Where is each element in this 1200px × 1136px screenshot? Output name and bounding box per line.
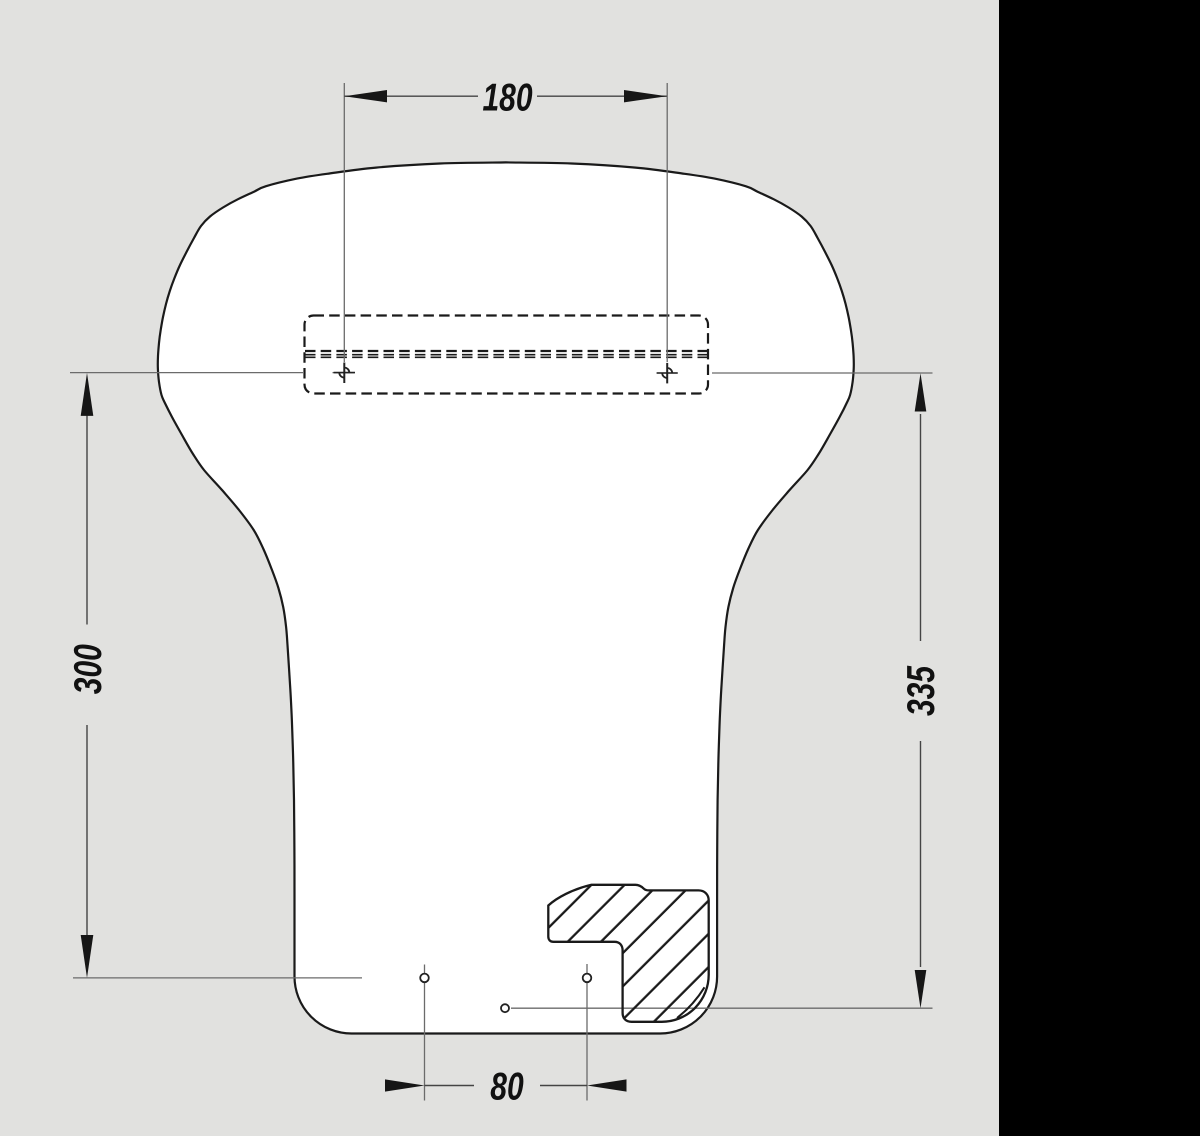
svg-text:335: 335 [901, 665, 943, 716]
svg-text:300: 300 [67, 644, 109, 694]
svg-text:180: 180 [482, 77, 532, 119]
svg-text:80: 80 [490, 1066, 523, 1108]
